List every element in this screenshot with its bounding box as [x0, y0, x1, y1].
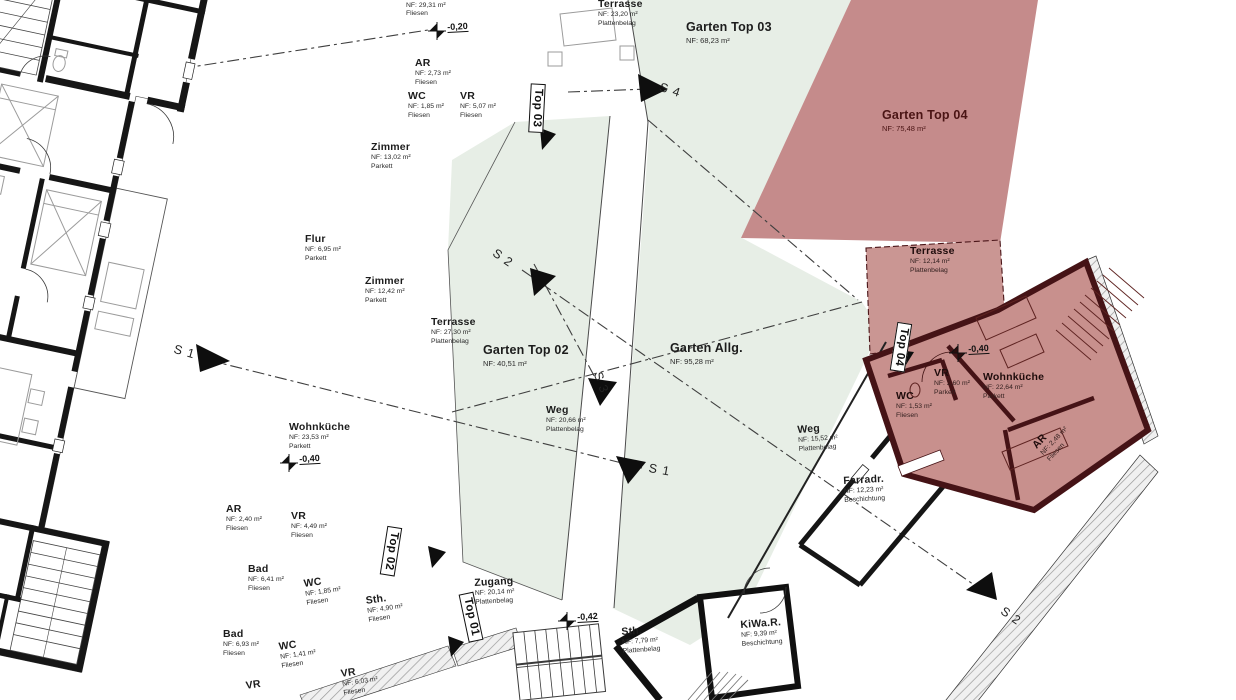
- zugang-2014-line-1: Plattenbelag: [475, 597, 515, 608]
- bad-693-line-1: Fliesen: [223, 650, 259, 658]
- weg-2066-line-0: NF: 20,66 m²: [546, 417, 586, 425]
- ar-273-line-1: Fliesen: [415, 79, 451, 87]
- wc-141-label: WCNF: 1,41 m²Fliesen: [278, 636, 318, 671]
- section-s1-mid-label: S 1: [648, 461, 672, 479]
- bad-641-name: Bad: [248, 563, 284, 576]
- vr-507-line-1: Fliesen: [460, 112, 496, 120]
- ar-240-name: AR: [226, 503, 262, 516]
- level-040-left-value: -0,40: [299, 453, 320, 465]
- terrasse-2730-name: Terrasse: [431, 316, 476, 329]
- garten-allg-line-0: NF: 95,28 m²: [670, 357, 743, 366]
- garten-allg-label: Garten Allg.NF: 95,28 m²: [670, 341, 743, 366]
- zimmer-1302-name: Zimmer: [371, 141, 411, 154]
- wohnkueche-2264-line-0: NF: 22,64 m²: [983, 384, 1044, 392]
- zimmer-1302-line-1: Parkett: [371, 163, 411, 171]
- wc-185a-name: WC: [408, 90, 444, 103]
- vr-bottom-left-name: VR: [245, 678, 262, 693]
- wc-185b-label: WCNF: 1,85 m²Fliesen: [303, 573, 343, 608]
- zimmer-1302-line-0: NF: 13,02 m²: [371, 154, 411, 162]
- wc-153-label: WCNF: 1,53 m²Fliesen: [896, 390, 932, 420]
- room-top-cut-line-1: Fliesen: [406, 10, 446, 18]
- level-040-right-value: -0,40: [968, 343, 989, 355]
- terrasse-2320-line-1: Plattenbelag: [598, 20, 643, 28]
- zimmer-1242-line-0: NF: 12,42 m²: [365, 288, 405, 296]
- terrasse-1214-label: TerrasseNF: 12,14 m²Plattenbelag: [910, 245, 955, 275]
- garten-top02-label: Garten Top 02NF: 40,51 m²: [483, 343, 569, 368]
- bad-641-line-1: Fliesen: [248, 585, 284, 593]
- wc-153-line-1: Fliesen: [896, 412, 932, 420]
- vr-260-label: VRNF: 2,60 m²Parkett: [934, 367, 970, 397]
- room-top-cut-line-0: NF: 29,31 m²: [406, 2, 446, 10]
- wc-153-name: WC: [896, 390, 932, 403]
- section-s1-left-label: S 1: [172, 342, 197, 361]
- wc-185a-line-1: Fliesen: [408, 112, 444, 120]
- garten-top03-label: Garten Top 03NF: 68,23 m²: [686, 20, 772, 45]
- garten-top03-name: Garten Top 03: [686, 20, 772, 36]
- ar-273-line-0: NF: 2,73 m²: [415, 70, 451, 78]
- plan-labels: NF: 29,31 m²FliesenTerrasseNF: 23,20 m²P…: [0, 0, 1236, 700]
- bad-641-line-0: NF: 6,41 m²: [248, 576, 284, 584]
- terrasse-2730-label: TerrasseNF: 27,30 m²Plattenbelag: [431, 316, 476, 346]
- zimmer-1242-label: ZimmerNF: 12,42 m²Parkett: [365, 275, 405, 305]
- zimmer-1242-line-1: Parkett: [365, 297, 405, 305]
- terrasse-2320-line-0: NF: 23,20 m²: [598, 11, 643, 19]
- flur-695-label: FlurNF: 6,95 m²Parkett: [305, 233, 341, 263]
- garten-top04-name: Garten Top 04: [882, 108, 968, 124]
- bad-693-line-0: NF: 6,93 m²: [223, 641, 259, 649]
- level-020-value: -0,20: [447, 21, 468, 33]
- garten-allg-name: Garten Allg.: [670, 341, 743, 357]
- zugang-2014-label: ZugangNF: 20,14 m²Plattenbelag: [474, 575, 515, 607]
- wohnkueche-2353-line-1: Parkett: [289, 443, 350, 451]
- garten-top04-label: Garten Top 04NF: 75,48 m²: [882, 108, 968, 133]
- vr-507-name: VR: [460, 90, 496, 103]
- wc-153-line-0: NF: 1,53 m²: [896, 403, 932, 411]
- terrasse-2730-line-0: NF: 27,30 m²: [431, 329, 476, 337]
- sth-779-label: Sth.NF: 7,79 m²Plattenbelag: [621, 623, 661, 656]
- unit-top02-tag: Top 02: [380, 526, 402, 576]
- flur-695-line-0: NF: 6,95 m²: [305, 246, 341, 254]
- section-s3-mid-label: S 3: [591, 370, 612, 395]
- wohnkueche-2264-label: WohnkücheNF: 22,64 m²Parkett: [983, 371, 1044, 401]
- wc-185a-label: WCNF: 1,85 m²Fliesen: [408, 90, 444, 120]
- ar-273-name: AR: [415, 57, 451, 70]
- vr-260-line-0: NF: 2,60 m²: [934, 380, 970, 388]
- ar-red-label: ARNF: 2,48 m²Fliesen: [1030, 417, 1076, 464]
- wohnkueche-2353-line-0: NF: 23,53 m²: [289, 434, 350, 442]
- vr-449-line-0: NF: 4,49 m²: [291, 523, 327, 531]
- garten-top04-line-0: NF: 75,48 m²: [882, 124, 968, 133]
- ar-273-label: ARNF: 2,73 m²Fliesen: [415, 57, 451, 87]
- wohnkueche-2264-name: Wohnküche: [983, 371, 1044, 384]
- bad-693-name: Bad: [223, 628, 259, 641]
- garten-top03-line-0: NF: 68,23 m²: [686, 36, 772, 45]
- vr-260-name: VR: [934, 367, 970, 380]
- room-top-cut-label: NF: 29,31 m²Fliesen: [406, 2, 446, 19]
- weg-2066-line-1: Plattenbelag: [546, 426, 586, 434]
- ar-240-line-0: NF: 2,40 m²: [226, 516, 262, 524]
- vr-260-line-1: Parkett: [934, 389, 970, 397]
- wohnkueche-2353-name: Wohnküche: [289, 421, 350, 434]
- vr-bottom-left-label: VR: [245, 678, 262, 693]
- zimmer-1302-label: ZimmerNF: 13,02 m²Parkett: [371, 141, 411, 171]
- terrasse-2730-line-1: Plattenbelag: [431, 338, 476, 346]
- wohnkueche-2264-line-1: Parkett: [983, 393, 1044, 401]
- bad-693-label: BadNF: 6,93 m²Fliesen: [223, 628, 259, 658]
- unit-top03-tag: Top 03: [528, 83, 546, 132]
- section-s2-top-label: S 2: [490, 246, 516, 270]
- zimmer-1242-name: Zimmer: [365, 275, 405, 288]
- terrasse-2320-name: Terrasse: [598, 0, 643, 11]
- ar-240-line-1: Fliesen: [226, 525, 262, 533]
- farradr-1223-line-1: Beschichtung: [844, 494, 885, 505]
- unit-top04-tag: Top 04: [890, 322, 912, 372]
- bad-641-label: BadNF: 6,41 m²Fliesen: [248, 563, 284, 593]
- weg-1552-label: WegNF: 15,52 m²Plattenbelag: [797, 421, 839, 454]
- terrasse-2320-label: TerrasseNF: 23,20 m²Plattenbelag: [598, 0, 643, 28]
- vr-449-label: VRNF: 4,49 m²Fliesen: [291, 510, 327, 540]
- ar-240-label: ARNF: 2,40 m²Fliesen: [226, 503, 262, 533]
- level-042-value: -0,42: [577, 611, 598, 623]
- kiwa-939-label: KiWa.R.NF: 9,39 m²Beschichtung: [740, 616, 783, 649]
- flur-695-name: Flur: [305, 233, 341, 246]
- wc-185a-line-0: NF: 1,85 m²: [408, 103, 444, 111]
- vr-449-name: VR: [291, 510, 327, 523]
- terrasse-1214-name: Terrasse: [910, 245, 955, 258]
- vr-603-label: VRNF: 6,03 m²Fliesen: [340, 663, 380, 698]
- garten-top02-line-0: NF: 40,51 m²: [483, 359, 569, 368]
- weg-2066-name: Weg: [546, 404, 586, 417]
- flur-695-line-1: Parkett: [305, 255, 341, 263]
- terrasse-1214-line-0: NF: 12,14 m²: [910, 258, 955, 266]
- farradr-1223-label: Farradr.NF: 12,23 m²Beschichtung: [843, 473, 885, 505]
- weg-2066-label: WegNF: 20,66 m²Plattenbelag: [546, 404, 586, 434]
- terrasse-1214-line-1: Plattenbelag: [910, 267, 955, 275]
- vr-507-label: VRNF: 5,07 m²Fliesen: [460, 90, 496, 120]
- vr-449-line-1: Fliesen: [291, 532, 327, 540]
- garten-top02-name: Garten Top 02: [483, 343, 569, 359]
- sth-779-line-1: Plattenbelag: [623, 645, 661, 656]
- sth-490-label: Sth.NF: 4,90 m²Fliesen: [365, 590, 405, 625]
- section-s4-top-label: S 4: [658, 80, 683, 100]
- section-s2-bottom-label: S 2: [998, 604, 1024, 628]
- floor-plan: NF: 29,31 m²FliesenTerrasseNF: 23,20 m²P…: [0, 0, 1236, 700]
- weg-1552-line-1: Plattenbelag: [799, 443, 839, 454]
- vr-507-line-0: NF: 5,07 m²: [460, 103, 496, 111]
- wohnkueche-2353-label: WohnkücheNF: 23,53 m²Parkett: [289, 421, 350, 451]
